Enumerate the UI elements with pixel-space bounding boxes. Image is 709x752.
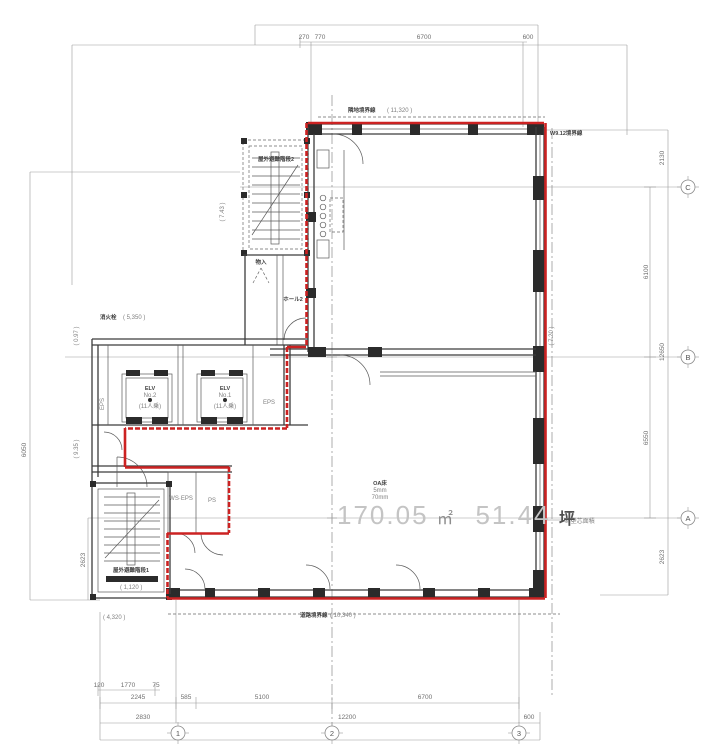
svg-text:1: 1	[176, 729, 180, 738]
dim-b1-120: 120	[94, 682, 105, 689]
dim-right-2623: 2623	[659, 549, 666, 564]
grid-bubble-3: 3	[508, 722, 530, 744]
entrance-hall-2: 物入 ホール2	[243, 255, 308, 345]
dim-b2-6700: 6700	[418, 694, 433, 701]
grid-bubble-A: A	[677, 507, 699, 529]
floor-plan-drawing: 270 770 6700 600 120 1770 75 2245 585 51…	[0, 0, 709, 752]
elevation-10340: ( 10,340 )	[330, 613, 356, 619]
service-rooms: WS·EPS PS	[168, 472, 228, 555]
outdoor-stair-1: 屋外避難階段1 ( 1,120 )	[90, 481, 172, 600]
elevation-4320: ( 4,320 )	[103, 615, 125, 621]
svg-text:(11人乗): (11人乗)	[214, 403, 236, 410]
svg-text:C: C	[685, 183, 691, 192]
svg-text:No.1: No.1	[219, 393, 232, 399]
dim-b3-12200: 12200	[338, 714, 356, 721]
grid-bubble-C: C	[677, 176, 699, 198]
elevation-11320: ( 11,320 )	[387, 108, 412, 114]
svg-text:A: A	[685, 514, 690, 523]
hall2-label: ホール2	[283, 296, 303, 303]
hydrant-note: 消火栓	[100, 313, 117, 321]
grid-bubble-1: 1	[167, 722, 189, 744]
stair1-note: ( 1,120 )	[120, 585, 142, 591]
dim-b2-2245: 2245	[131, 694, 146, 701]
office-area: OA床 5mm 70mm 170.05 ㎡ 51.44 坪	[337, 479, 575, 530]
dim-right-12650: 12650	[659, 343, 666, 361]
elevator-car-2: ELV No.2 (11人乗)	[122, 370, 172, 424]
dim-left-6050: 6050	[21, 442, 28, 457]
dim-top-270: 270	[299, 34, 310, 41]
boundary-note-top-right: W9.12境界線	[550, 129, 583, 137]
boundary-note-top: 隣地境界線	[348, 106, 376, 114]
svg-text:ELV: ELV	[220, 386, 231, 392]
svg-text:2: 2	[330, 729, 334, 738]
storage-label: 物入	[255, 258, 267, 266]
dim-right-2130: 2130	[659, 150, 666, 165]
elevator-car-1: ELV No.1 (11人乗)	[197, 370, 247, 424]
annotations: 隣地境界線 ( 11,320 ) 道路境界線 ( 10,340 ) W9.12境…	[74, 106, 595, 621]
svg-text:3: 3	[517, 729, 521, 738]
grid-bubble-B: B	[677, 346, 699, 368]
ps-label: PS	[208, 498, 216, 504]
dim-b3-2830: 2830	[136, 714, 151, 721]
eps-right-label: EPS	[263, 400, 275, 406]
dim-right-6550: 6550	[643, 430, 650, 445]
grid-bubble-2: 2	[321, 722, 343, 744]
outdoor-stair-2: 屋外避難階段2	[241, 138, 310, 256]
floor-plan-page: 270 770 6700 600 120 1770 75 2245 585 51…	[0, 0, 709, 752]
elevation-097: ( 0.97 )	[74, 326, 80, 345]
ws-eps-label: WS·EPS	[169, 496, 193, 502]
elevation-935: ( 9.35 )	[74, 439, 80, 458]
dim-b1-75: 75	[152, 682, 160, 689]
dim-top-770: 770	[315, 34, 326, 41]
dim-right-6100: 6100	[643, 264, 650, 279]
office-note-1: OA床	[373, 479, 387, 487]
elevation-5350: ( 5,350 )	[123, 315, 145, 321]
toilet-fixtures	[317, 150, 344, 258]
area-label: 170.05 ㎡ 51.44 坪	[337, 500, 575, 530]
dim-top-6700: 6700	[417, 34, 432, 41]
grid-bubbles: 1 2 3 C B A	[167, 176, 699, 744]
eps-left-label: EPS	[100, 398, 106, 410]
stair2-label: 屋外避難階段2	[258, 155, 294, 163]
elevation-720: ( 7.20 )	[549, 326, 555, 345]
office-note-2: 5mm	[373, 488, 386, 494]
dim-b3-600: 600	[524, 714, 535, 721]
dim-b2-585: 585	[181, 694, 192, 701]
elevation-743: ( 7.43 )	[220, 202, 226, 221]
dim-top-600: 600	[523, 34, 534, 41]
dim-b2-5100: 5100	[255, 694, 270, 701]
stair1-label: 屋外避難階段1	[113, 566, 149, 574]
svg-text:B: B	[685, 353, 690, 362]
dim-b1-1770: 1770	[121, 682, 136, 689]
svg-text:No.2: No.2	[144, 393, 157, 399]
svg-text:(11人乗): (11人乗)	[139, 403, 161, 410]
lobby	[92, 432, 232, 487]
svg-text:ELV: ELV	[145, 386, 156, 392]
dim-left-2623: 2623	[80, 552, 87, 567]
boundary-note-bottom: 道路境界線	[300, 611, 328, 619]
